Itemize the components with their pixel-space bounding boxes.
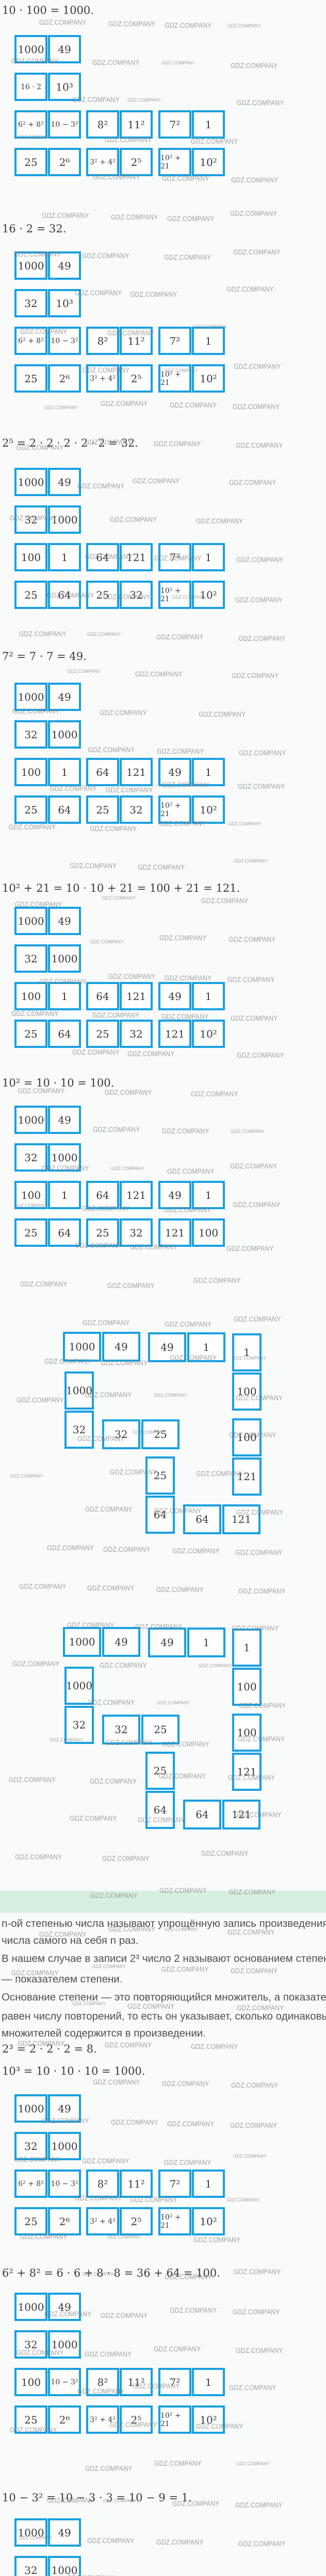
grid-cell: 100 (14, 1181, 47, 1209)
watermark: GDZ.COMPANY (226, 285, 274, 293)
grid-cell: 1000 (48, 2132, 81, 2160)
watermark: GDZ.COMPANY (234, 1315, 281, 1323)
watermark: GDZ.COMPANY (67, 669, 101, 674)
watermark: GDZ.COMPANY (17, 1396, 64, 1404)
grid-cell: 3² + 4² (86, 364, 119, 393)
watermark: GDZ.COMPANY (228, 821, 262, 827)
watermark: GDZ.COMPANY (85, 1505, 133, 1513)
grid-cell: 10² (192, 2405, 225, 2434)
grid-cell: 49 (48, 35, 81, 63)
watermark: GDZ.COMPANY (88, 746, 135, 754)
grid-cell: 2⁶ (48, 2207, 81, 2235)
grid-cell: 1 (48, 1181, 81, 1209)
grid-cell: 10² (192, 2207, 225, 2235)
watermark: GDZ.COMPANY (101, 400, 148, 408)
domino-cell: 100 (232, 1668, 262, 1706)
watermark: GDZ.COMPANY (87, 632, 121, 637)
step-equation: 2⁵ = 2 · 2 · 2 · 2 · 2 = 32. (2, 437, 138, 449)
watermark: GDZ.COMPANY (156, 1586, 204, 1594)
watermark: GDZ.COMPANY (227, 23, 261, 29)
grid-cell: 10 − 3² (48, 2170, 81, 2198)
domino-cell: 1 (187, 1628, 225, 1657)
watermark: GDZ.COMPANY (90, 825, 137, 833)
grid-cell: 100 (14, 982, 47, 1010)
watermark: GDZ.COMPANY (77, 482, 125, 490)
grid-cell: 6² + 8² (14, 327, 47, 355)
grid-cell: 49 (48, 2293, 81, 2321)
grid-cell: 49 (48, 2094, 81, 2123)
grid-cell: 10² + 21 (158, 364, 191, 393)
grid-cell: 1000 (14, 2094, 47, 2123)
watermark: GDZ.COMPANY (233, 403, 280, 411)
grid-cell: 1000 (14, 1106, 47, 1134)
grid-cell: 121 (120, 543, 153, 571)
watermark: GDZ.COMPANY (154, 440, 201, 448)
watermark: GDZ.COMPANY (102, 895, 136, 901)
grid-cell: 1 (192, 982, 225, 1010)
watermark: GDZ.COMPANY (236, 2347, 283, 2354)
watermark: GDZ.COMPANY (82, 252, 129, 260)
watermark: GDZ.COMPANY (82, 2157, 129, 2165)
domino-cell: 32 (64, 1706, 94, 1744)
watermark: GDZ.COMPANY (231, 62, 278, 70)
grid-cell: 25 (86, 795, 119, 824)
grid-cell: 1000 (14, 468, 47, 496)
watermark: GDZ.COMPANY (92, 1011, 140, 1019)
watermark: GDZ.COMPANY (111, 1166, 144, 1172)
grid-cell: 10 − 3² (48, 2368, 81, 2396)
grid-cell: 25 (86, 1020, 119, 1048)
domino-cell: 1 (187, 1332, 225, 1362)
grid-cell: 7² (158, 543, 191, 571)
domino-cell: 1000 (64, 1667, 94, 1705)
watermark: GDZ.COMPANY (92, 59, 140, 66)
grid-cell: 32 (120, 1218, 153, 1247)
grid-cell: 1000 (48, 944, 81, 973)
grid-cell: 100 (192, 1218, 225, 1247)
watermark: GDZ.COMPANY (106, 786, 153, 794)
grid-cell: 1 (48, 758, 81, 786)
domino-cell: 25 (145, 1456, 175, 1495)
domino-cell: 64 (183, 1800, 221, 1829)
grid-cell: 1 (192, 327, 225, 355)
watermark: GDZ.COMPANY (101, 2312, 148, 2319)
watermark: GDZ.COMPANY (70, 862, 117, 870)
watermark: GDZ.COMPANY (127, 2003, 175, 2010)
grid-cell: 16 · 2 (14, 73, 47, 101)
grid-cell: 32 (14, 2330, 47, 2359)
watermark: GDZ.COMPANY (70, 1815, 117, 1822)
grid-cell: 10² (192, 1020, 225, 1048)
watermark: GDZ.COMPANY (108, 973, 156, 980)
step-equation: 10 − 3² = 10 − 3 · 3 = 10 − 9 = 1. (2, 2492, 192, 2504)
watermark: GDZ.COMPANY (196, 517, 243, 525)
domino-cell: 64 (145, 1496, 175, 1534)
watermark: GDZ.COMPANY (236, 2461, 270, 2467)
theory-text-line: n-ой степенью числа называют упрощённую … (2, 1918, 326, 1930)
watermark: GDZ.COMPANY (234, 363, 281, 370)
grid-cell: 10³ (48, 73, 81, 101)
grid-cell: 2⁶ (48, 148, 81, 176)
watermark: GDZ.COMPANY (229, 936, 276, 943)
grid-cell: 25 (86, 581, 119, 609)
watermark: GDZ.COMPANY (201, 1850, 249, 1857)
domino-cell: 32 (64, 1411, 94, 1449)
watermark: GDZ.COMPANY (172, 1547, 220, 1555)
step-equation: 7² = 7 · 7 = 49. (2, 650, 87, 663)
watermark: GDZ.COMPANY (102, 1855, 150, 1862)
watermark: GDZ.COMPANY (154, 1393, 187, 1398)
grid-cell: 7² (158, 2170, 191, 2198)
grid-cell: 32 (14, 2132, 47, 2160)
watermark: GDZ.COMPANY (226, 2197, 260, 2203)
watermark: GDZ.COMPANY (238, 783, 285, 790)
watermark: GDZ.COMPANY (167, 2120, 215, 2128)
watermark: GDZ.COMPANY (231, 176, 279, 184)
watermark: GDZ.COMPANY (165, 1320, 212, 1328)
watermark: GDZ.COMPANY (93, 2078, 140, 2086)
grid-cell: 64 (86, 982, 119, 1010)
grid-cell: 121 (158, 1218, 191, 1247)
watermark: GDZ.COMPANY (135, 670, 183, 678)
theory-equation: 10³ = 10 · 10 · 10 = 1000. (2, 2065, 145, 2077)
watermark: GDZ.COMPANY (201, 897, 249, 905)
grid-cell: 1 (192, 543, 225, 571)
watermark: GDZ.COMPANY (161, 1965, 209, 1973)
domino-cell: 49 (148, 1628, 186, 1657)
watermark: GDZ.COMPANY (229, 2384, 276, 2392)
step-equation: 6² + 8² = 6 · 6 + 8 · 8 = 36 + 64 = 100. (2, 2267, 220, 2279)
watermark: GDZ.COMPANY (234, 858, 268, 864)
watermark: GDZ.COMPANY (157, 1700, 190, 1706)
grid-cell: 25 (14, 2405, 47, 2434)
grid-cell: 64 (48, 795, 81, 824)
section-divider-band (0, 1891, 326, 1913)
grid-cell: 11² (120, 2368, 153, 2396)
step-equation: 10² + 21 = 10 · 10 + 21 = 100 + 21 = 121… (2, 882, 240, 894)
watermark: GDZ.COMPANY (88, 1699, 135, 1706)
grid-cell: 3² + 4² (86, 2405, 119, 2434)
grid-cell: 8² (86, 327, 119, 355)
grid-cell: 10² + 21 (158, 148, 191, 176)
watermark: GDZ.COMPANY (233, 2308, 280, 2316)
watermark: GDZ.COMPANY (230, 2122, 278, 2129)
watermark: GDZ.COMPANY (154, 2345, 201, 2353)
grid-cell: 49 (48, 683, 81, 711)
grid-cell: 11² (120, 327, 153, 355)
watermark: GDZ.COMPANY (165, 974, 212, 982)
watermark: GDZ.COMPANY (161, 60, 195, 66)
grid-cell: 1000 (48, 505, 81, 534)
grid-cell: 64 (86, 1181, 119, 1209)
grid-cell: 25 (14, 2207, 47, 2235)
grid-cell: 8² (86, 110, 119, 139)
domino-cell: 49 (102, 1332, 140, 1362)
watermark: GDZ.COMPANY (167, 215, 215, 223)
watermark: GDZ.COMPANY (105, 2041, 152, 2049)
watermark: GDZ.COMPANY (133, 477, 180, 485)
domino-cell: 64 (183, 1504, 221, 1534)
grid-cell: 32 (120, 581, 153, 609)
grid-cell: 1000 (14, 35, 47, 63)
grid-cell: 25 (14, 148, 47, 176)
watermark: GDZ.COMPANY (110, 516, 157, 523)
watermark: GDZ.COMPANY (15, 1853, 62, 1861)
watermark: GDZ.COMPANY (87, 2537, 135, 2545)
grid-cell: 11² (120, 2170, 153, 2198)
theory-text-line: равен числу повторений, то есть он указы… (2, 2010, 326, 2023)
watermark: GDZ.COMPANY (235, 2501, 283, 2509)
watermark: GDZ.COMPANY (231, 2081, 279, 2089)
theory-text-line: — показателем степени. (2, 1973, 122, 1986)
watermark: GDZ.COMPANY (154, 2460, 202, 2467)
watermark: GDZ.COMPANY (100, 1662, 147, 1669)
grid-cell: 1 (192, 110, 225, 139)
watermark: GDZ.COMPANY (235, 1549, 283, 1556)
grid-cell: 10² (192, 581, 225, 609)
watermark: GDZ.COMPANY (236, 556, 284, 564)
grid-cell: 2⁵ (120, 2405, 153, 2434)
grid-cell: 49 (158, 1181, 191, 1209)
grid-cell: 3² + 4² (86, 148, 119, 176)
theory-text-line: числа самого на себя n раз. (2, 1935, 138, 1947)
grid-cell: 25 (14, 364, 47, 393)
grid-cell: 49 (158, 982, 191, 1010)
domino-cell: 32 (102, 1419, 140, 1449)
watermark: GDZ.COMPANY (164, 2159, 211, 2166)
watermark: GDZ.COMPANY (156, 2538, 204, 2546)
grid-cell: 100 (14, 758, 47, 786)
watermark: GDZ.COMPANY (19, 1583, 67, 1590)
grid-cell: 10² + 21 (158, 2405, 191, 2434)
watermark: GDZ.COMPANY (231, 1014, 278, 1022)
gdz-solution-page: 10 · 100 = 1000.10004916 · 210³6² + 8²10… (0, 0, 326, 2576)
watermark: GDZ.COMPANY (111, 213, 158, 221)
grid-cell: 2⁵ (120, 2207, 153, 2235)
grid-cell: 6² + 8² (14, 2170, 47, 2198)
watermark: GDZ.COMPANY (233, 248, 281, 256)
grid-cell: 32 (14, 505, 47, 534)
grid-cell: 1000 (14, 251, 47, 280)
watermark: GDZ.COMPANY (111, 2119, 158, 2126)
grid-cell: 32 (14, 1143, 47, 1172)
grid-cell: 64 (86, 758, 119, 786)
grid-cell: 32 (14, 2556, 47, 2576)
watermark: GDZ.COMPANY (164, 253, 211, 261)
grid-cell: 10² (192, 795, 225, 824)
watermark: GDZ.COMPANY (42, 212, 89, 219)
watermark: GDZ.COMPANY (167, 1167, 215, 1175)
domino-cell: 64 (145, 1791, 175, 1829)
domino-cell: 1000 (63, 1332, 101, 1362)
grid-cell: 8² (86, 2170, 119, 2198)
watermark: GDZ.COMPANY (39, 19, 87, 26)
theory-text-line: множителей содержится в произведении. (2, 2027, 206, 2040)
grid-cell: 1000 (48, 2556, 81, 2576)
watermark: GDZ.COMPANY (232, 672, 279, 680)
watermark: GDZ.COMPANY (100, 709, 147, 717)
watermark: GDZ.COMPANY (159, 934, 207, 942)
watermark: GDZ.COMPANY (238, 2540, 286, 2548)
watermark: GDZ.COMPANY (191, 138, 238, 145)
theory-text-line: В нашем случае в записи 2³ число 2 назыв… (2, 1953, 326, 1965)
grid-cell: 10² + 21 (158, 795, 191, 824)
watermark: GDZ.COMPANY (93, 1126, 140, 1133)
watermark: GDZ.COMPANY (9, 1776, 56, 1784)
watermark: GDZ.COMPANY (10, 1473, 43, 1479)
domino-cell: 121 (222, 1504, 260, 1534)
grid-cell: 121 (120, 758, 153, 786)
grid-cell: 2⁶ (48, 2405, 81, 2434)
grid-cell: 100 (14, 543, 47, 571)
watermark: GDZ.COMPANY (105, 1089, 152, 1096)
grid-cell: 10³ (48, 289, 81, 317)
grid-cell: 10 − 3² (48, 327, 81, 355)
watermark: GDZ.COMPANY (191, 1090, 238, 1098)
theory-equation: 2³ = 2 · 2 · 2 = 8. (2, 2043, 97, 2055)
watermark: GDZ.COMPANY (238, 1587, 286, 1595)
watermark: GDZ.COMPANY (237, 1052, 284, 1059)
domino-cell: 1000 (64, 1371, 94, 1410)
grid-cell: 10² (192, 148, 225, 176)
grid-cell: 7² (158, 2368, 191, 2396)
grid-cell: 121 (120, 1181, 153, 1209)
grid-cell: 32 (14, 289, 47, 317)
watermark: GDZ.COMPANY (127, 97, 161, 103)
domino-cell: 121 (232, 1753, 262, 1791)
watermark: GDZ.COMPANY (12, 1660, 60, 1668)
grid-cell: 25 (14, 795, 47, 824)
domino-cell: 1 (232, 1629, 262, 1667)
watermark: GDZ.COMPANY (170, 401, 217, 409)
watermark: GDZ.COMPANY (85, 2465, 133, 2472)
grid-cell: 49 (48, 468, 81, 496)
domino-cell: 100 (232, 1714, 262, 1752)
watermark: GDZ.COMPANY (20, 1280, 68, 1288)
watermark: GDZ.COMPANY (191, 2043, 238, 2050)
domino-cell: 25 (141, 1419, 180, 1449)
domino-cell: 121 (222, 1800, 260, 1829)
watermark: GDZ.COMPANY (72, 1048, 120, 1056)
grid-cell: 49 (48, 2518, 81, 2547)
domino-cell: 1000 (63, 1627, 101, 1657)
grid-cell: 1 (48, 543, 81, 571)
grid-cell: 25 (86, 1218, 119, 1247)
watermark: GDZ.COMPANY (193, 1277, 241, 1284)
grid-cell: 32 (14, 720, 47, 749)
watermark: GDZ.COMPANY (235, 596, 283, 604)
grid-cell: 32 (120, 795, 153, 824)
grid-cell: 10 − 3² (48, 110, 81, 139)
grid-cell: 1 (192, 1181, 225, 1209)
grid-cell: 11² (120, 110, 153, 139)
watermark: GDZ.COMPANY (162, 2080, 209, 2088)
watermark: GDZ.COMPANY (233, 1201, 281, 1209)
watermark: GDZ.COMPANY (199, 1663, 232, 1669)
grid-cell: 1000 (14, 2293, 47, 2321)
step-equation: 10² = 10 · 10 = 100. (2, 1077, 114, 1089)
grid-cell: 1 (192, 2170, 225, 2198)
watermark: GDZ.COMPANY (90, 939, 124, 945)
watermark: GDZ.COMPANY (19, 630, 67, 638)
grid-cell: 1 (192, 758, 225, 786)
grid-cell: 6² + 8² (14, 110, 47, 139)
watermark: GDZ.COMPANY (87, 1584, 135, 1592)
watermark: GDZ.COMPANY (193, 2236, 241, 2244)
grid-cell: 2⁵ (120, 364, 153, 393)
grid-cell: 3² + 4² (86, 2207, 119, 2235)
step-equation: 16 · 2 = 32. (2, 223, 66, 235)
watermark: GDZ.COMPANY (156, 633, 204, 641)
grid-cell: 121 (158, 1020, 191, 1048)
grid-cell: 1000 (14, 2518, 47, 2547)
grid-cell: 2⁵ (120, 148, 153, 176)
watermark: GDZ.COMPANY (47, 1544, 94, 1552)
watermark: GDZ.COMPANY (138, 863, 185, 871)
grid-cell: 64 (48, 1020, 81, 1048)
watermark: GDZ.COMPANY (199, 710, 246, 718)
watermark: GDZ.COMPANY (229, 479, 276, 486)
grid-cell: 8² (86, 2368, 119, 2396)
watermark: GDZ.COMPANY (226, 1245, 274, 1252)
watermark: GDZ.COMPANY (230, 210, 278, 217)
watermark: GDZ.COMPANY (234, 2268, 281, 2276)
grid-cell: 10² + 21 (158, 581, 191, 609)
watermark: GDZ.COMPANY (103, 1546, 151, 1553)
grid-cell: 7² (158, 110, 191, 139)
grid-cell: 1000 (14, 683, 47, 711)
watermark: GDZ.COMPANY (44, 405, 78, 411)
grid-cell: 32 (14, 944, 47, 973)
watermark: GDZ.COMPANY (239, 749, 286, 757)
grid-cell: 1 (48, 982, 81, 1010)
domino-cell: 1 (232, 1333, 262, 1371)
watermark: GDZ.COMPANY (162, 1127, 209, 1135)
grid-cell: 7² (158, 327, 191, 355)
grid-cell: 64 (86, 543, 119, 571)
domino-cell: 49 (102, 1627, 140, 1657)
grid-cell: 1000 (14, 907, 47, 935)
domino-cell: 25 (145, 1752, 175, 1790)
watermark: GDZ.COMPANY (9, 823, 56, 831)
watermark: GDZ.COMPANY (108, 20, 156, 28)
watermark: GDZ.COMPANY (11, 1010, 59, 1018)
theory-text-line: Основание степени — это повторяющийся мн… (2, 1991, 326, 2004)
watermark: GDZ.COMPANY (233, 2154, 267, 2159)
grid-cell: 1 (192, 2368, 225, 2396)
watermark: GDZ.COMPANY (170, 2307, 217, 2314)
grid-cell: 49 (158, 758, 191, 786)
watermark: GDZ.COMPANY (236, 442, 283, 449)
grid-cell: 49 (48, 251, 81, 280)
grid-cell: 100 (14, 2368, 47, 2396)
grid-cell: 25 (14, 1020, 47, 1048)
grid-cell: 1000 (48, 2330, 81, 2359)
watermark: GDZ.COMPANY (83, 1319, 130, 1327)
watermark: GDZ.COMPANY (157, 748, 204, 755)
grid-cell: 10² (192, 364, 225, 393)
watermark: GDZ.COMPANY (237, 99, 284, 107)
grid-cell: 1000 (48, 720, 81, 749)
grid-cell: 64 (48, 1218, 81, 1247)
watermark: GDZ.COMPANY (231, 1129, 265, 1134)
grid-cell: 64 (48, 581, 81, 609)
grid-cell: 121 (120, 982, 153, 1010)
watermark: GDZ.COMPANY (238, 635, 286, 642)
watermark: GDZ.COMPANY (127, 1050, 175, 1058)
watermark: GDZ.COMPANY (75, 289, 122, 297)
grid-cell: 49 (48, 907, 81, 935)
